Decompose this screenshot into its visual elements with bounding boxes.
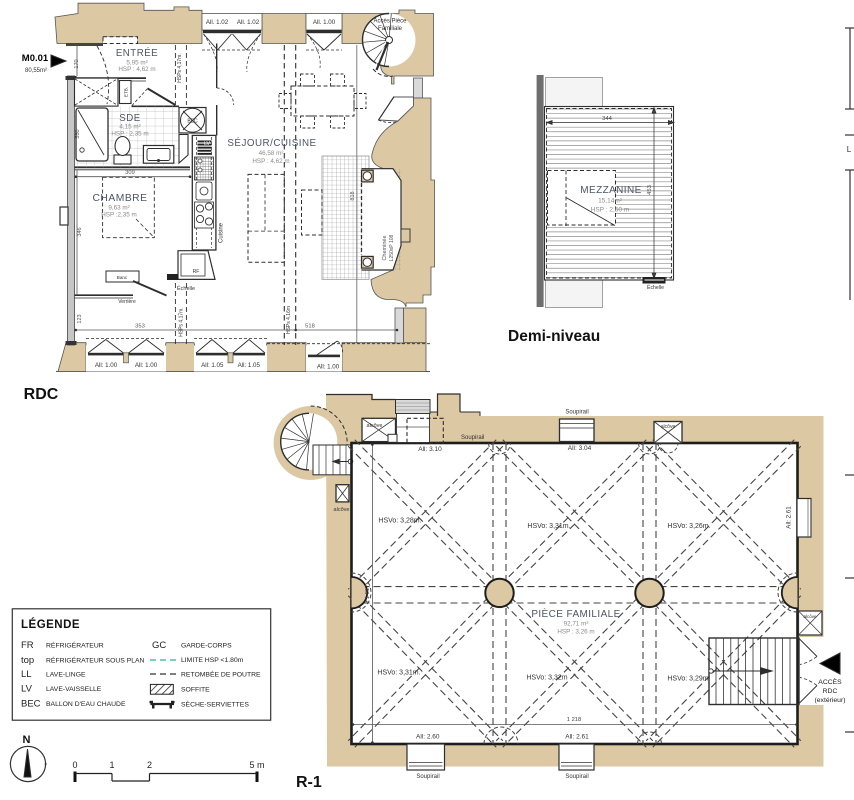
svg-text:353: 353 [135, 324, 145, 330]
svg-text:RF: RF [193, 269, 200, 275]
svg-text:HSP : 2,35 m: HSP : 2,35 m [111, 130, 148, 137]
svg-text:344: 344 [602, 116, 612, 122]
svg-text:LÉGENDE: LÉGENDE [21, 618, 80, 631]
svg-text:LV: LV [204, 141, 210, 147]
svg-text:309: 309 [125, 170, 135, 176]
svg-text:518: 518 [305, 324, 315, 330]
svg-text:GC: GC [152, 640, 166, 651]
svg-text:Demi-niveau: Demi-niveau [508, 328, 600, 345]
svg-text:9,63 m²: 9,63 m² [108, 205, 129, 212]
svg-text:alcôve: alcôve [367, 423, 383, 429]
svg-text:M0.01: M0.01 [22, 53, 49, 64]
svg-text:L250xP 108: L250xP 108 [389, 234, 395, 261]
svg-text:HSPs 4,17m.: HSPs 4,17m. [177, 53, 183, 82]
svg-text:1 817: 1 817 [365, 585, 371, 600]
svg-text:Soupirail: Soupirail [416, 774, 439, 780]
svg-text:RDC: RDC [823, 688, 838, 695]
svg-text:HSVo: 3,29m: HSVo: 3,29m [667, 676, 708, 683]
svg-text:Cuisine: Cuisine [219, 222, 225, 243]
svg-text:All: 1.00: All: 1.00 [95, 362, 118, 369]
svg-text:SOFFITE: SOFFITE [181, 687, 210, 694]
svg-text:alcôve: alcôve [334, 507, 350, 513]
svg-text:R-1: R-1 [296, 774, 322, 791]
svg-text:SÉJOUR/CUISINE: SÉJOUR/CUISINE [227, 138, 316, 149]
svg-text:HSVo: 3,31m.: HSVo: 3,31m. [377, 670, 420, 677]
svg-text:LL: LL [21, 669, 32, 680]
svg-text:All: 2.60: All: 2.60 [416, 734, 440, 741]
svg-text:46,58 m²: 46,58 m² [259, 150, 284, 157]
svg-text:LV: LV [21, 684, 33, 695]
svg-text:HSVo: 3,28m.: HSVo: 3,28m. [378, 518, 421, 525]
svg-text:L: L [847, 145, 852, 154]
svg-text:Soupirail: Soupirail [461, 435, 484, 441]
svg-text:PIÈCE FAMILIALE: PIÈCE FAMILIALE [531, 607, 620, 620]
svg-text:Échelle: Échelle [647, 284, 664, 291]
svg-text:HSP : 4,62 m: HSP : 4,62 m [252, 158, 289, 165]
svg-text:Familiale: Familiale [378, 26, 403, 32]
svg-text:Soupirail: Soupirail [565, 774, 588, 780]
svg-text:(extérieur): (extérieur) [815, 697, 846, 704]
svg-text:alcôve: alcôve [803, 614, 817, 619]
svg-text:550: 550 [75, 129, 81, 138]
svg-text:HSP : 4,62 m: HSP : 4,62 m [118, 66, 155, 73]
svg-text:All: 3.04: All: 3.04 [568, 445, 592, 452]
svg-text:453: 453 [647, 185, 653, 195]
svg-text:HSPs 4,17m.: HSPs 4,17m. [179, 307, 185, 336]
svg-text:HSP : 3,26 m: HSP : 3,26 m [557, 629, 594, 636]
svg-text:SDE: SDE [119, 113, 140, 124]
svg-text:ENTRÉE: ENTRÉE [116, 48, 158, 59]
svg-text:BALLON D'EAU CHAUDE: BALLON D'EAU CHAUDE [46, 701, 126, 708]
svg-text:Verrière: Verrière [118, 299, 136, 305]
svg-text:0: 0 [72, 760, 77, 770]
svg-text:CHAMBRE: CHAMBRE [93, 193, 148, 204]
svg-text:Accès Pièce: Accès Pièce [373, 19, 407, 25]
svg-text:ACCÈS: ACCÈS [818, 677, 842, 686]
svg-text:92,71 m²: 92,71 m² [564, 621, 589, 628]
svg-text:HSVo: 3,32m: HSVo: 3,32m [526, 675, 567, 682]
svg-text:LAVE-LINGE: LAVE-LINGE [46, 672, 86, 679]
svg-text:All: 2.61: All: 2.61 [786, 506, 793, 529]
svg-text:ETB.: ETB. [124, 87, 129, 97]
svg-text:RETOMBÉE DE POUTRE: RETOMBÉE DE POUTRE [181, 670, 261, 679]
svg-text:BEC: BEC [21, 699, 41, 710]
svg-text:All: 1.00: All: 1.00 [317, 364, 340, 371]
svg-text:All. 1.02: All. 1.02 [206, 19, 229, 26]
svg-text:818: 818 [350, 191, 356, 200]
svg-text:Banc: Banc [117, 275, 128, 280]
svg-text:LIMITE HSP <1.80m: LIMITE HSP <1.80m [181, 657, 244, 664]
svg-text:SÈCHE-SERVIETTES: SÈCHE-SERVIETTES [181, 700, 249, 709]
svg-text:5 m: 5 m [249, 760, 264, 770]
svg-text:15,14m²: 15,14m² [598, 198, 623, 205]
svg-text:All: 1.05: All: 1.05 [201, 362, 224, 369]
svg-text:1: 1 [109, 760, 114, 770]
svg-text:All: 3.10: All: 3.10 [418, 446, 442, 453]
svg-text:All: 1.00: All: 1.00 [135, 362, 158, 369]
svg-text:BEC: BEC [187, 119, 198, 125]
svg-text:Soupirail: Soupirail [565, 410, 588, 416]
svg-text:RDC: RDC [24, 386, 59, 403]
svg-text:2: 2 [147, 760, 152, 770]
svg-text:Cheminée: Cheminée [382, 235, 388, 260]
svg-text:HSVo: 3,26m.: HSVo: 3,26m. [667, 523, 710, 530]
svg-text:80,55m²: 80,55m² [25, 68, 47, 74]
svg-text:1 218: 1 218 [567, 717, 582, 723]
svg-text:All. 1.02: All. 1.02 [237, 19, 260, 26]
svg-text:All: 2.61: All: 2.61 [565, 734, 589, 741]
svg-text:All: 1.05: All: 1.05 [238, 362, 261, 369]
svg-text:FR: FR [21, 640, 34, 651]
svg-text:LAVE-VAISSELLE: LAVE-VAISSELLE [46, 686, 102, 693]
svg-text:123: 123 [77, 314, 83, 323]
svg-text:N: N [23, 734, 31, 746]
svg-text:RÉFRIGÉRATEUR: RÉFRIGÉRATEUR [46, 641, 104, 650]
svg-text:170: 170 [74, 59, 80, 68]
svg-text:346: 346 [77, 227, 83, 236]
svg-text:HSP : 2,60 m: HSP : 2,60 m [591, 207, 630, 214]
svg-text:RÉFRIGÉRATEUR SOUS PLAN: RÉFRIGÉRATEUR SOUS PLAN [46, 656, 145, 665]
svg-text:GARDE-CORPS: GARDE-CORPS [181, 643, 232, 650]
svg-text:HSVo: 3,31m.: HSVo: 3,31m. [527, 523, 570, 530]
svg-text:alcôve: alcôve [661, 424, 676, 430]
svg-text:All. 1.00: All. 1.00 [313, 19, 336, 26]
svg-text:HSP :2,35 m: HSP :2,35 m [101, 212, 137, 219]
svg-text:MEZZANINE: MEZZANINE [580, 185, 641, 196]
svg-text:top: top [21, 655, 34, 666]
